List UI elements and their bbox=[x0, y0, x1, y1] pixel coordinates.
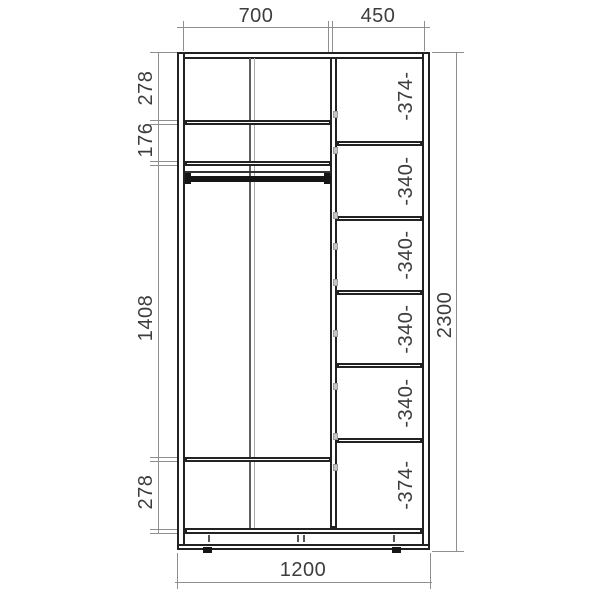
dim-label-height-2300: 2300 bbox=[433, 250, 457, 380]
extension-line bbox=[177, 553, 178, 589]
fitting-mark bbox=[333, 111, 338, 118]
shelf-label-374-2: -374- bbox=[394, 420, 418, 550]
right-wall bbox=[422, 52, 430, 550]
left-shelf-bottom bbox=[185, 457, 331, 462]
left-shelf-second bbox=[185, 161, 331, 166]
rod-support-line bbox=[185, 171, 331, 173]
fitting-mark bbox=[333, 212, 338, 219]
fitting-mark bbox=[333, 433, 338, 440]
door-guide-mark bbox=[208, 535, 210, 542]
center-divider bbox=[330, 57, 337, 528]
fitting-mark bbox=[333, 147, 338, 154]
width-dimension-line bbox=[175, 582, 432, 583]
fitting-mark bbox=[333, 243, 338, 250]
fitting-mark bbox=[333, 383, 338, 390]
door-guide-mark bbox=[303, 535, 305, 542]
top-panel bbox=[177, 52, 430, 59]
extension-line bbox=[183, 21, 184, 51]
rod-bracket-left bbox=[185, 173, 191, 184]
rod-bracket-right bbox=[324, 173, 330, 184]
dim-label-top-700: 700 bbox=[201, 4, 311, 28]
wardrobe-dimension-diagram: 700 450 278 176 1408 278 2300 1200 -374-… bbox=[0, 0, 600, 600]
extension-line bbox=[432, 551, 464, 552]
extension-line bbox=[432, 52, 464, 53]
floor-panel bbox=[185, 528, 422, 534]
dim-label-left-1408: 1408 bbox=[134, 253, 158, 383]
fitting-mark bbox=[333, 464, 338, 471]
left-wall bbox=[177, 52, 185, 550]
fitting-mark bbox=[333, 279, 338, 286]
extension-line bbox=[430, 553, 431, 589]
dim-label-top-450: 450 bbox=[323, 4, 433, 28]
left-shelf-top bbox=[185, 120, 331, 125]
dim-label-left-278-bottom: 278 bbox=[134, 427, 158, 557]
dim-label-left-176: 176 bbox=[134, 75, 158, 205]
door-guide-mark bbox=[297, 535, 299, 542]
foot bbox=[203, 547, 212, 553]
dim-label-width-1200: 1200 bbox=[248, 558, 358, 582]
fitting-mark bbox=[333, 330, 338, 337]
hanging-rod bbox=[185, 176, 331, 182]
